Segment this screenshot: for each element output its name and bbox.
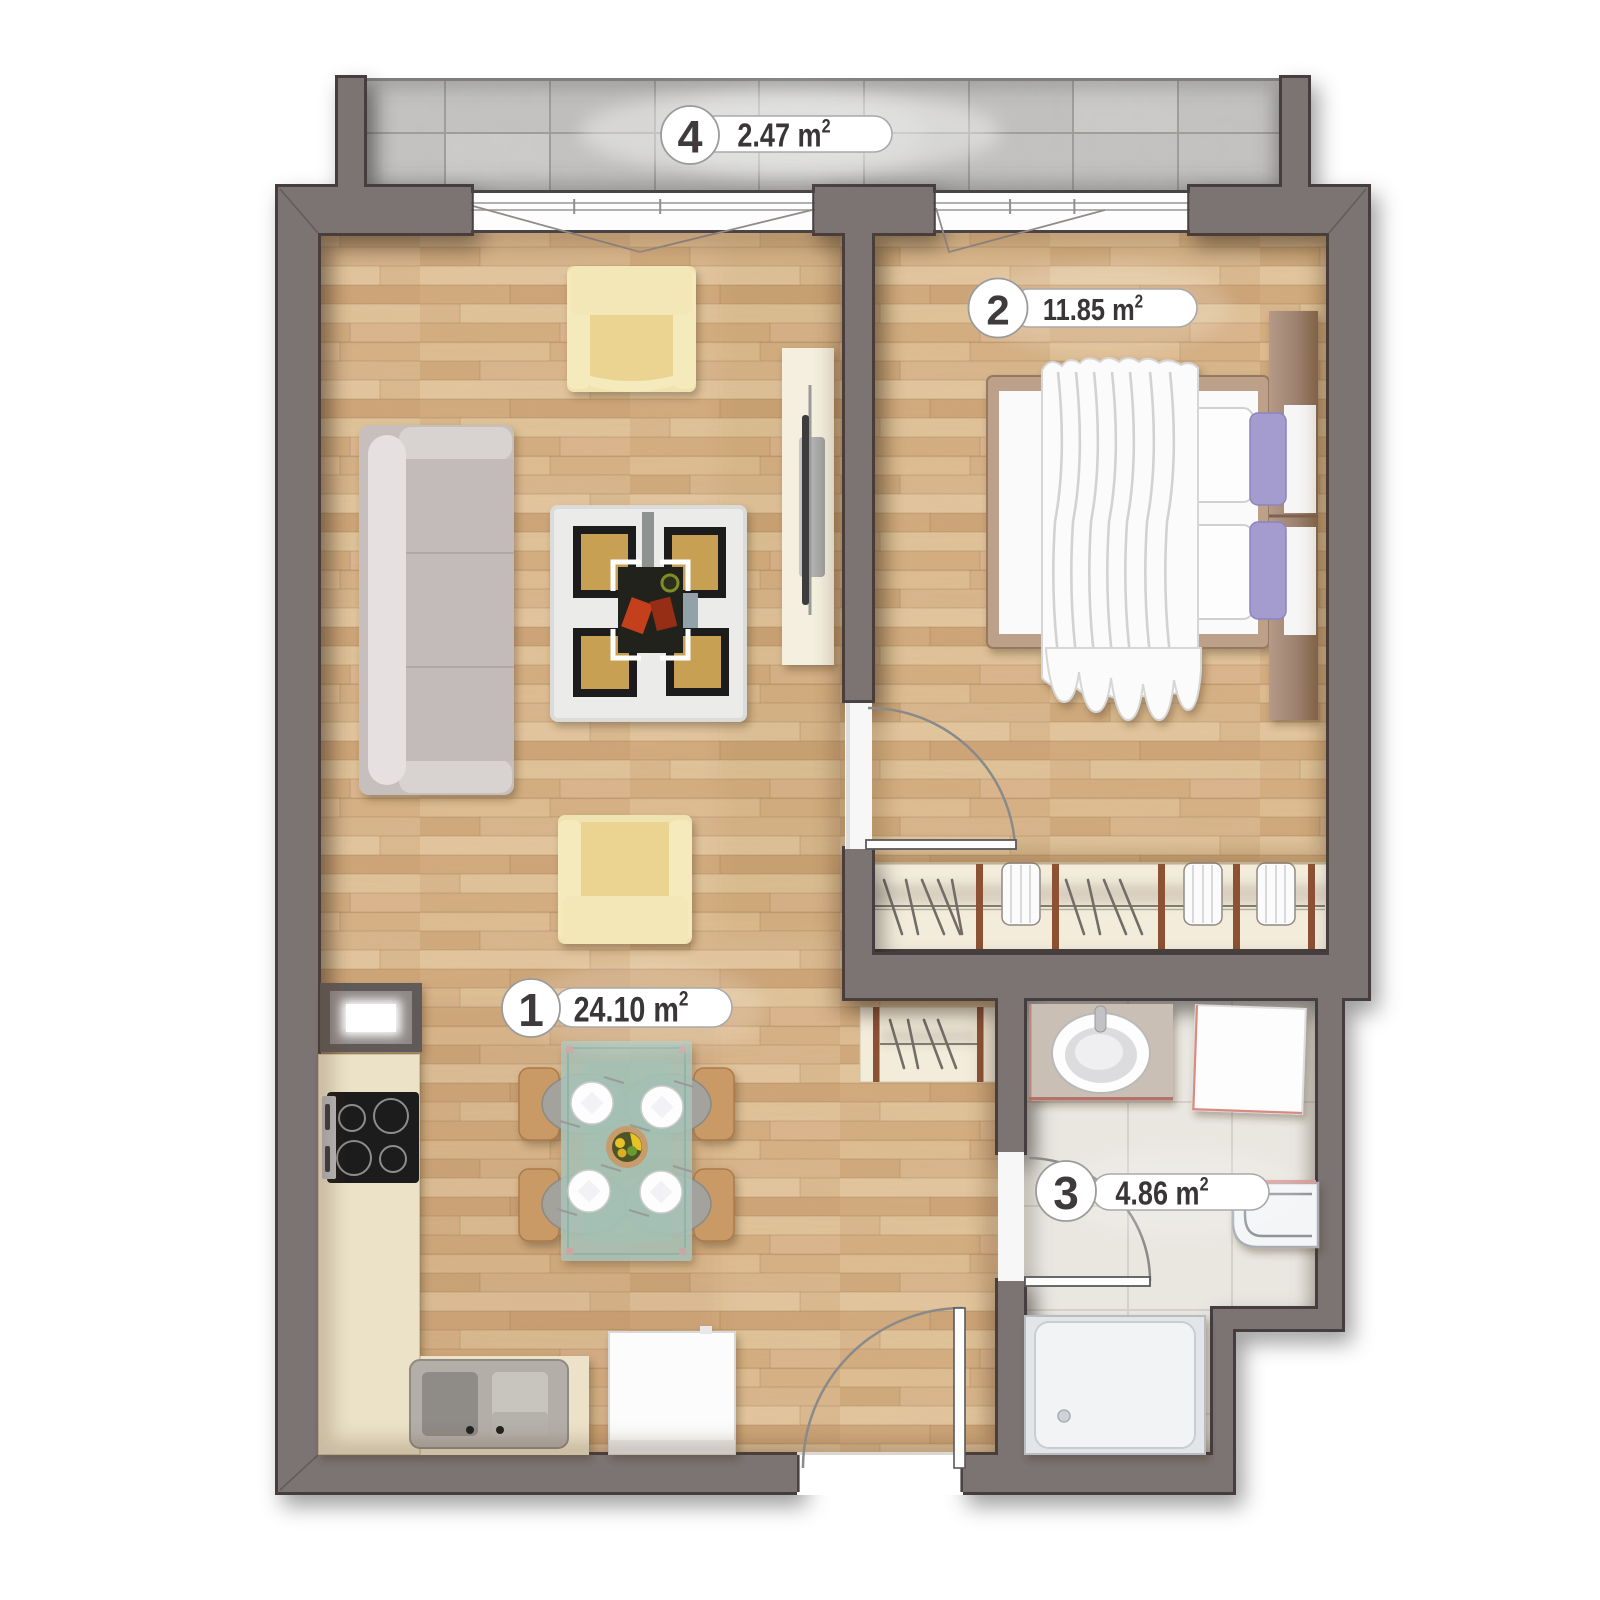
svg-text:1: 1 xyxy=(518,984,544,1036)
svg-text:2: 2 xyxy=(986,287,1009,334)
svg-text:11.85 m2: 11.85 m2 xyxy=(1043,290,1143,327)
svg-text:24.10 m2: 24.10 m2 xyxy=(574,988,689,1030)
svg-text:4.86 m2: 4.86 m2 xyxy=(1115,1173,1208,1212)
svg-text:3: 3 xyxy=(1053,1167,1079,1219)
svg-text:4: 4 xyxy=(677,112,702,163)
svg-text:2.47 m2: 2.47 m2 xyxy=(737,115,830,154)
